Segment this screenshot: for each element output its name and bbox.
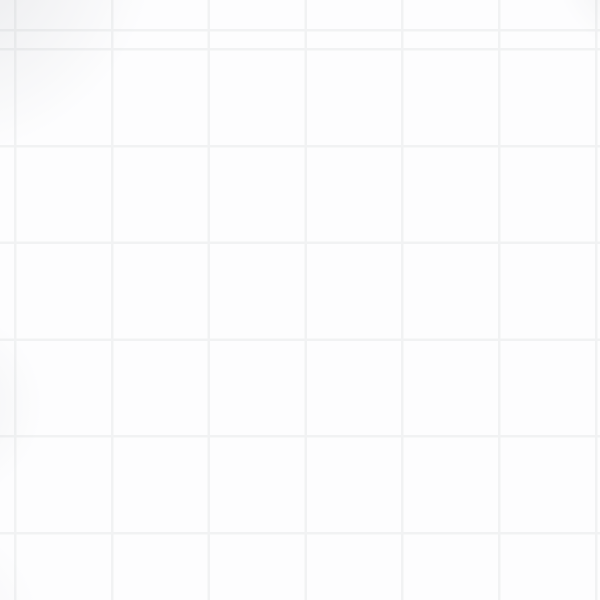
conveyor-scene — [0, 0, 600, 600]
game-board[interactable] — [0, 0, 600, 600]
